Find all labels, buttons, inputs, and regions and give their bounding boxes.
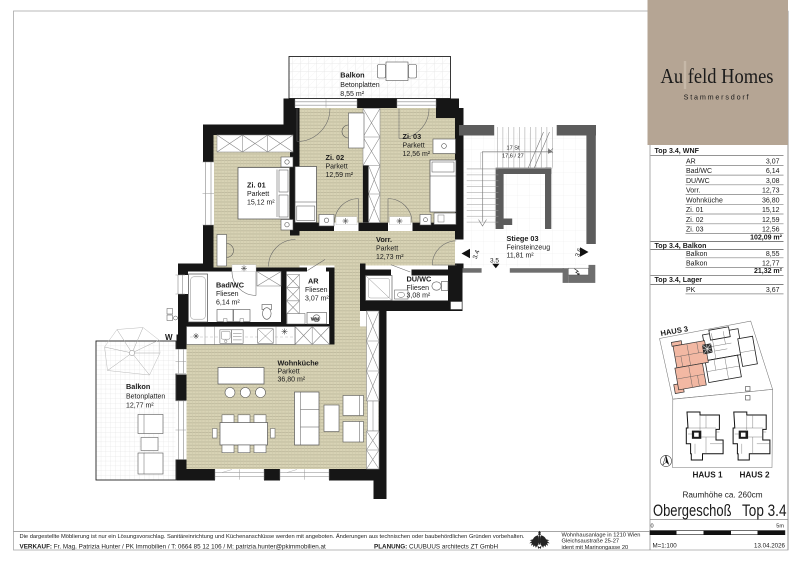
svg-text:12,56: 12,56 <box>762 227 780 234</box>
svg-text:Top 3.4, Balkon: Top 3.4, Balkon <box>655 242 707 250</box>
svg-text:Zi. 03: Zi. 03 <box>686 227 704 234</box>
svg-text:3.5: 3.5 <box>490 258 499 265</box>
svg-text:Parkett: Parkett <box>326 164 348 171</box>
svg-text:Zi. 01: Zi. 01 <box>686 207 704 214</box>
svg-text:Wohnküche: Wohnküche <box>686 197 723 204</box>
svg-text:17,6 / 27: 17,6 / 27 <box>502 154 524 160</box>
svg-text:Fliesen: Fliesen <box>407 285 430 292</box>
svg-text:Stammersdorf: Stammersdorf <box>684 93 751 102</box>
svg-text:WM: WM <box>311 317 319 322</box>
svg-text:DU/WC: DU/WC <box>407 275 432 284</box>
svg-text:Top 3.4, Lager: Top 3.4, Lager <box>655 276 703 284</box>
svg-text:AR: AR <box>308 277 319 286</box>
svg-text:0: 0 <box>651 524 654 530</box>
svg-text:Feinsteinzeug: Feinsteinzeug <box>507 245 551 252</box>
svg-text:12,59 m²: 12,59 m² <box>326 172 354 179</box>
svg-text:36,80 m²: 36,80 m² <box>278 377 306 384</box>
svg-text:6,14 m²: 6,14 m² <box>216 300 240 307</box>
svg-text:HAUS 2: HAUS 2 <box>739 471 769 480</box>
svg-text:Wohnhausanlage in 1210 Wien: Wohnhausanlage in 1210 Wien <box>562 533 641 539</box>
svg-text:3,67: 3,67 <box>766 287 780 294</box>
svg-text:12,77 m²: 12,77 m² <box>126 403 154 410</box>
svg-text:HAUS 1: HAUS 1 <box>692 471 722 480</box>
svg-text:Die dargestellte Möblierung is: Die dargestellte Möblierung ist nur ein … <box>20 533 525 540</box>
svg-text:12,77: 12,77 <box>762 261 780 268</box>
svg-text:VERKAUF: Fr. Mag. Patrizia Hun: VERKAUF: Fr. Mag. Patrizia Hunter / PK I… <box>20 543 326 550</box>
svg-text:PLANUNG: CUUBUUS architects ZT: PLANUNG: CUUBUUS architects ZT GmbH <box>374 543 499 550</box>
svg-text:5m: 5m <box>776 524 784 530</box>
svg-text:Parkett: Parkett <box>403 143 425 150</box>
svg-text:Balkon: Balkon <box>340 71 364 80</box>
svg-text:Fliesen: Fliesen <box>216 291 239 298</box>
svg-text:Balkon: Balkon <box>686 261 708 268</box>
svg-text:Gleichsaustraße 25-27: Gleichsaustraße 25-27 <box>562 539 620 545</box>
svg-text:Obergeschoß: Obergeschoß <box>653 502 732 520</box>
svg-text:Wohnküche: Wohnküche <box>278 359 319 368</box>
svg-text:Top 3.4, WNF: Top 3.4, WNF <box>655 147 700 155</box>
svg-text:12,73: 12,73 <box>762 188 780 195</box>
svg-text:Zi. 01: Zi. 01 <box>247 181 266 190</box>
svg-text:3,08 m²: 3,08 m² <box>407 293 431 300</box>
svg-text:Zi. 03: Zi. 03 <box>403 132 422 141</box>
svg-text:Betonplatten: Betonplatten <box>340 82 379 89</box>
svg-text:Parkett: Parkett <box>376 246 398 253</box>
svg-text:Au feld Homes: Au feld Homes <box>661 64 774 88</box>
svg-text:Betonplatten: Betonplatten <box>126 394 165 401</box>
svg-text:3,08: 3,08 <box>766 178 780 185</box>
svg-text:ident mit Marinongasse 20: ident mit Marinongasse 20 <box>562 545 629 551</box>
svg-text:12,73 m²: 12,73 m² <box>376 254 404 261</box>
svg-text:12,56 m²: 12,56 m² <box>403 151 431 158</box>
svg-text:36,80: 36,80 <box>762 197 780 204</box>
svg-text:W: W <box>165 333 173 342</box>
svg-text:3,07: 3,07 <box>766 158 780 165</box>
svg-text:102,09 m²: 102,09 m² <box>750 234 783 241</box>
svg-text:6,14: 6,14 <box>766 168 780 175</box>
svg-text:Stiege 03: Stiege 03 <box>507 234 539 243</box>
svg-text:Fliesen: Fliesen <box>305 287 328 294</box>
svg-text:21,32 m²: 21,32 m² <box>754 268 783 275</box>
svg-text:15,12: 15,12 <box>762 207 780 214</box>
svg-text:13.04.2026: 13.04.2026 <box>754 543 786 550</box>
svg-text:Raumhöhe ca. 260cm: Raumhöhe ca. 260cm <box>682 491 762 500</box>
svg-text:3,07 m²: 3,07 m² <box>305 296 329 303</box>
svg-text:Balkon: Balkon <box>126 382 150 391</box>
svg-text:8,55: 8,55 <box>766 251 780 258</box>
svg-text:Bad/WC: Bad/WC <box>216 281 245 290</box>
svg-text:17 St: 17 St <box>507 146 521 152</box>
svg-text:Balkon: Balkon <box>686 251 708 258</box>
svg-text:Vorr.: Vorr. <box>376 235 392 244</box>
svg-text:12,59: 12,59 <box>762 217 780 224</box>
svg-text:AR: AR <box>686 158 696 165</box>
svg-text:11,81 m²: 11,81 m² <box>507 253 535 260</box>
svg-text:8,55 m²: 8,55 m² <box>340 91 364 98</box>
svg-text:Zi. 02: Zi. 02 <box>326 153 345 162</box>
svg-text:Bad/WC: Bad/WC <box>686 168 712 175</box>
svg-text:Parkett: Parkett <box>247 191 269 198</box>
svg-text:DU/WC: DU/WC <box>686 178 710 185</box>
svg-text:Zi. 02: Zi. 02 <box>686 217 704 224</box>
svg-text:Top 3.4: Top 3.4 <box>742 502 787 520</box>
svg-text:Vorr.: Vorr. <box>686 188 700 195</box>
svg-text:15,12 m²: 15,12 m² <box>247 200 275 207</box>
svg-text:M=1:100: M=1:100 <box>653 543 678 550</box>
svg-text:Parkett: Parkett <box>278 369 300 376</box>
svg-text:PK: PK <box>686 287 696 294</box>
